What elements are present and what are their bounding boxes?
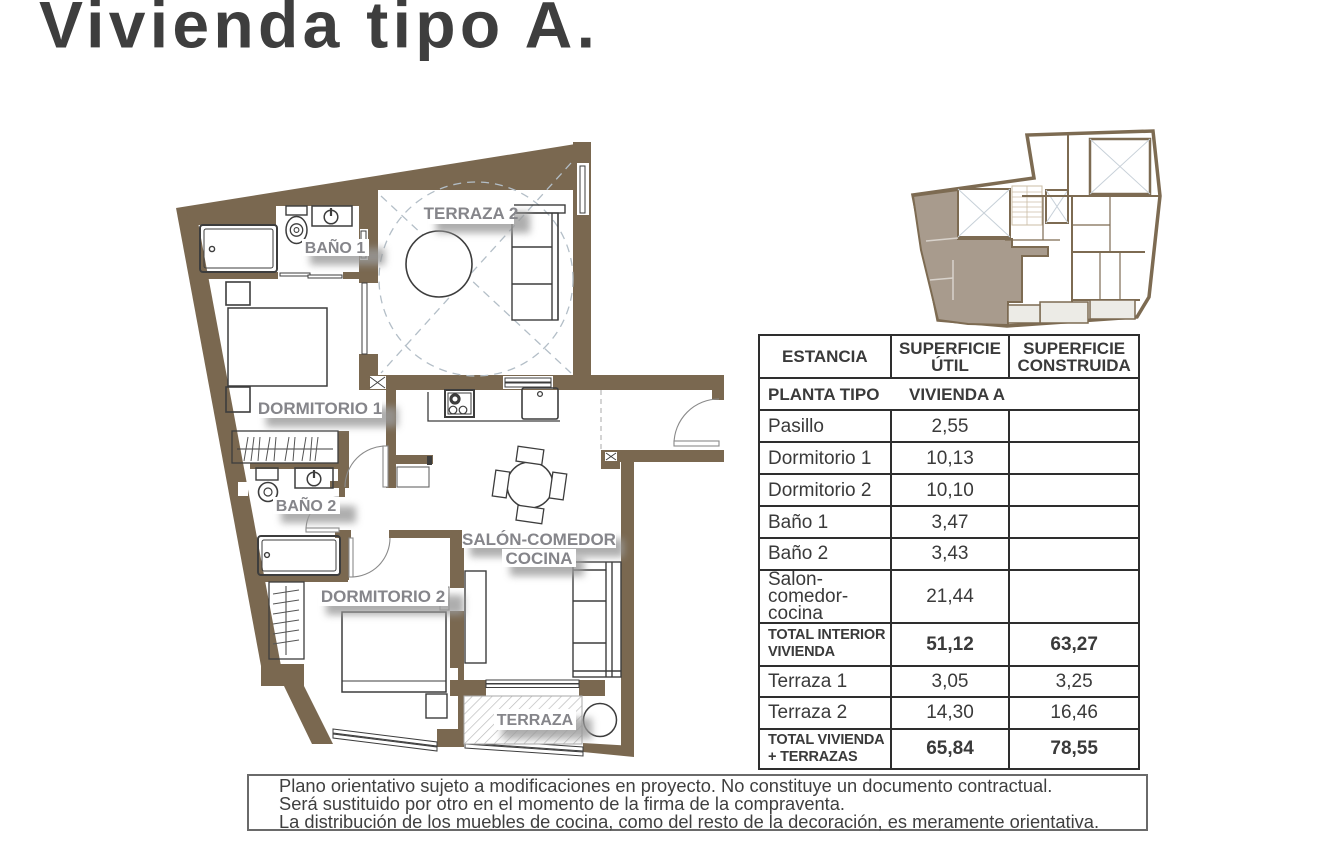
svg-text:BAÑO 2: BAÑO 2	[276, 495, 337, 515]
svg-text:BAÑO 1: BAÑO 1	[305, 237, 366, 257]
svg-text:TERRAZA: TERRAZA	[497, 712, 574, 729]
svg-text:COCINA: COCINA	[505, 549, 572, 568]
svg-text:DORMITORIO 2: DORMITORIO 2	[321, 587, 445, 606]
svg-text:DORMITORIO 1: DORMITORIO 1	[258, 399, 382, 418]
svg-text:Vivienda tipo A.: Vivienda tipo A.	[39, 0, 599, 62]
svg-text:SALÓN-COMEDOR: SALÓN-COMEDOR	[462, 530, 616, 549]
svg-text:TERRAZA 2: TERRAZA 2	[424, 204, 519, 223]
